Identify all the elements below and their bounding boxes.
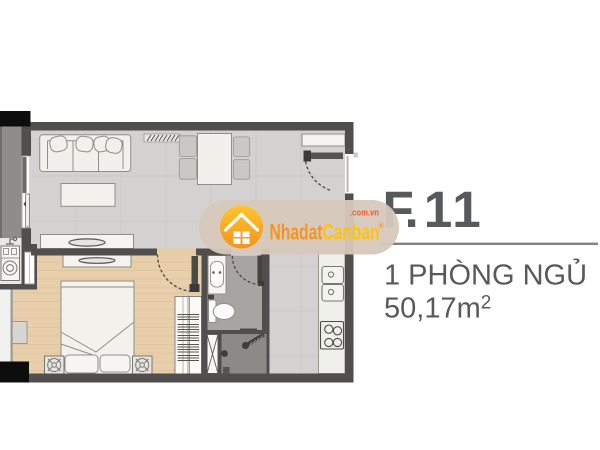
svg-text:®: ® <box>379 222 385 230</box>
svg-text:50,17m2: 50,17m2 <box>384 292 491 324</box>
svg-text:Nhadat: Nhadat <box>270 220 323 245</box>
svg-text:1 PHÒNG NGỦ: 1 PHÒNG NGỦ <box>384 258 587 292</box>
svg-text:.com.vn: .com.vn <box>350 208 379 218</box>
svg-text:Canban: Canban <box>323 220 380 245</box>
